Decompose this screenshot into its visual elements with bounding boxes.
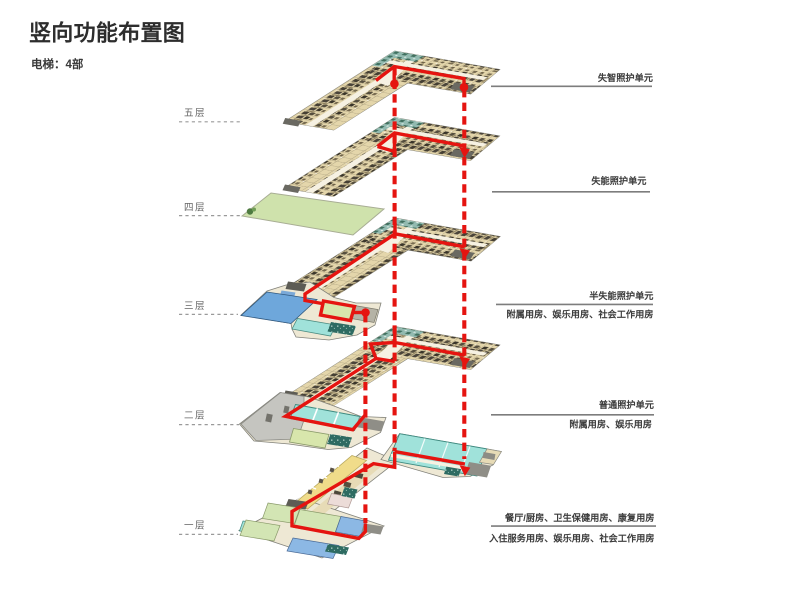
svg-text:入住服务用房、娱乐用房、社会工作用房: 入住服务用房、娱乐用房、社会工作用房 [489, 533, 654, 544]
svg-text:餐厅/厨房、卫生保健用房、康复用房: 餐厅/厨房、卫生保健用房、康复用房 [504, 512, 655, 523]
svg-text:竖向功能布置图: 竖向功能布置图 [29, 21, 185, 46]
svg-text:普通照护单元: 普通照护单元 [599, 399, 654, 410]
svg-text:二层: 二层 [184, 411, 206, 422]
svg-text:一层: 一层 [184, 521, 206, 532]
svg-text:失智照护单元: 失智照护单元 [598, 72, 653, 83]
svg-text:附属用房、娱乐用房: 附属用房、娱乐用房 [569, 419, 652, 430]
svg-text:三层: 三层 [184, 301, 206, 312]
svg-text:电梯：4部: 电梯：4部 [31, 57, 84, 71]
svg-text:失能照护单元: 失能照护单元 [591, 175, 646, 186]
svg-text:半失能照护单元: 半失能照护单元 [589, 290, 653, 301]
svg-text:附属用房、娱乐用房、社会工作用房: 附属用房、娱乐用房、社会工作用房 [507, 309, 654, 320]
svg-text:五层: 五层 [184, 108, 206, 119]
svg-text:四层: 四层 [184, 203, 206, 214]
